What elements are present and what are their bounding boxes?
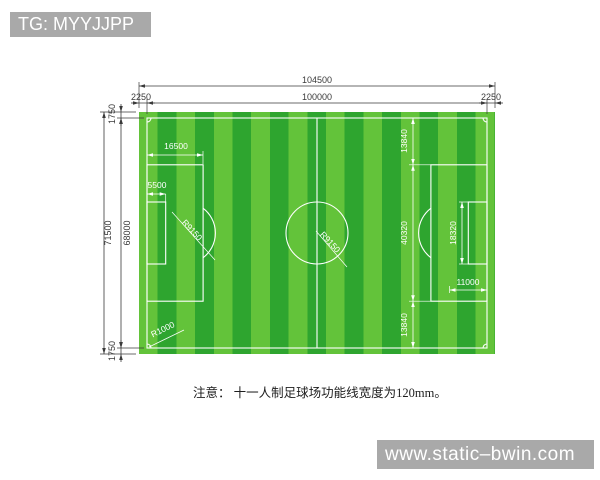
dim-penalty-bottom-offset-label: 13840 <box>399 313 409 337</box>
right-penalty-arc <box>419 208 431 258</box>
dim-penalty-top-offset-label: 13840 <box>399 129 409 153</box>
dim-total-width-label: 104500 <box>302 75 332 85</box>
dim-goal-width-label: 18320 <box>448 221 458 245</box>
dim-penalty-depth-label: 16500 <box>164 141 188 151</box>
dim-margin-left-label: 2250 <box>131 92 151 102</box>
dim-corner-radius-label: R1000 <box>149 319 176 339</box>
left-penalty-arc <box>203 208 215 258</box>
corner-arc-top-right <box>483 118 487 122</box>
dim-center-circle-radius-label: R9150 <box>318 229 343 254</box>
corner-arc-top-left <box>147 118 151 122</box>
dim-margin-top-label: 1750 <box>107 104 117 124</box>
note-text: 注意： 十一人制足球场功能线宽度为120mm。 <box>193 382 447 401</box>
field-plan-svg: 104500 100000 2250 2250 71500 68000 1750… <box>0 0 600 480</box>
dim-penalty-arc-radius-label: R9150 <box>180 217 205 242</box>
corner-arc-bottom-right <box>483 344 487 348</box>
right-goal-area <box>468 202 487 264</box>
dim-field-height-label: 68000 <box>122 220 132 245</box>
dim-penalty-width-label: 40320 <box>399 221 409 245</box>
dim-total-height-label: 71500 <box>103 220 113 245</box>
watermark-bottom-right: www.static–bwin.com <box>377 440 594 469</box>
dim-margin-bottom-label: 1750 <box>107 341 117 361</box>
left-goal-area <box>147 202 166 264</box>
dim-margin-right-label: 2250 <box>481 92 501 102</box>
dim-penalty-spot-label: 11000 <box>456 277 479 287</box>
dim-field-width-label: 100000 <box>302 92 332 102</box>
dim-goal-depth-label: 5500 <box>148 180 167 190</box>
